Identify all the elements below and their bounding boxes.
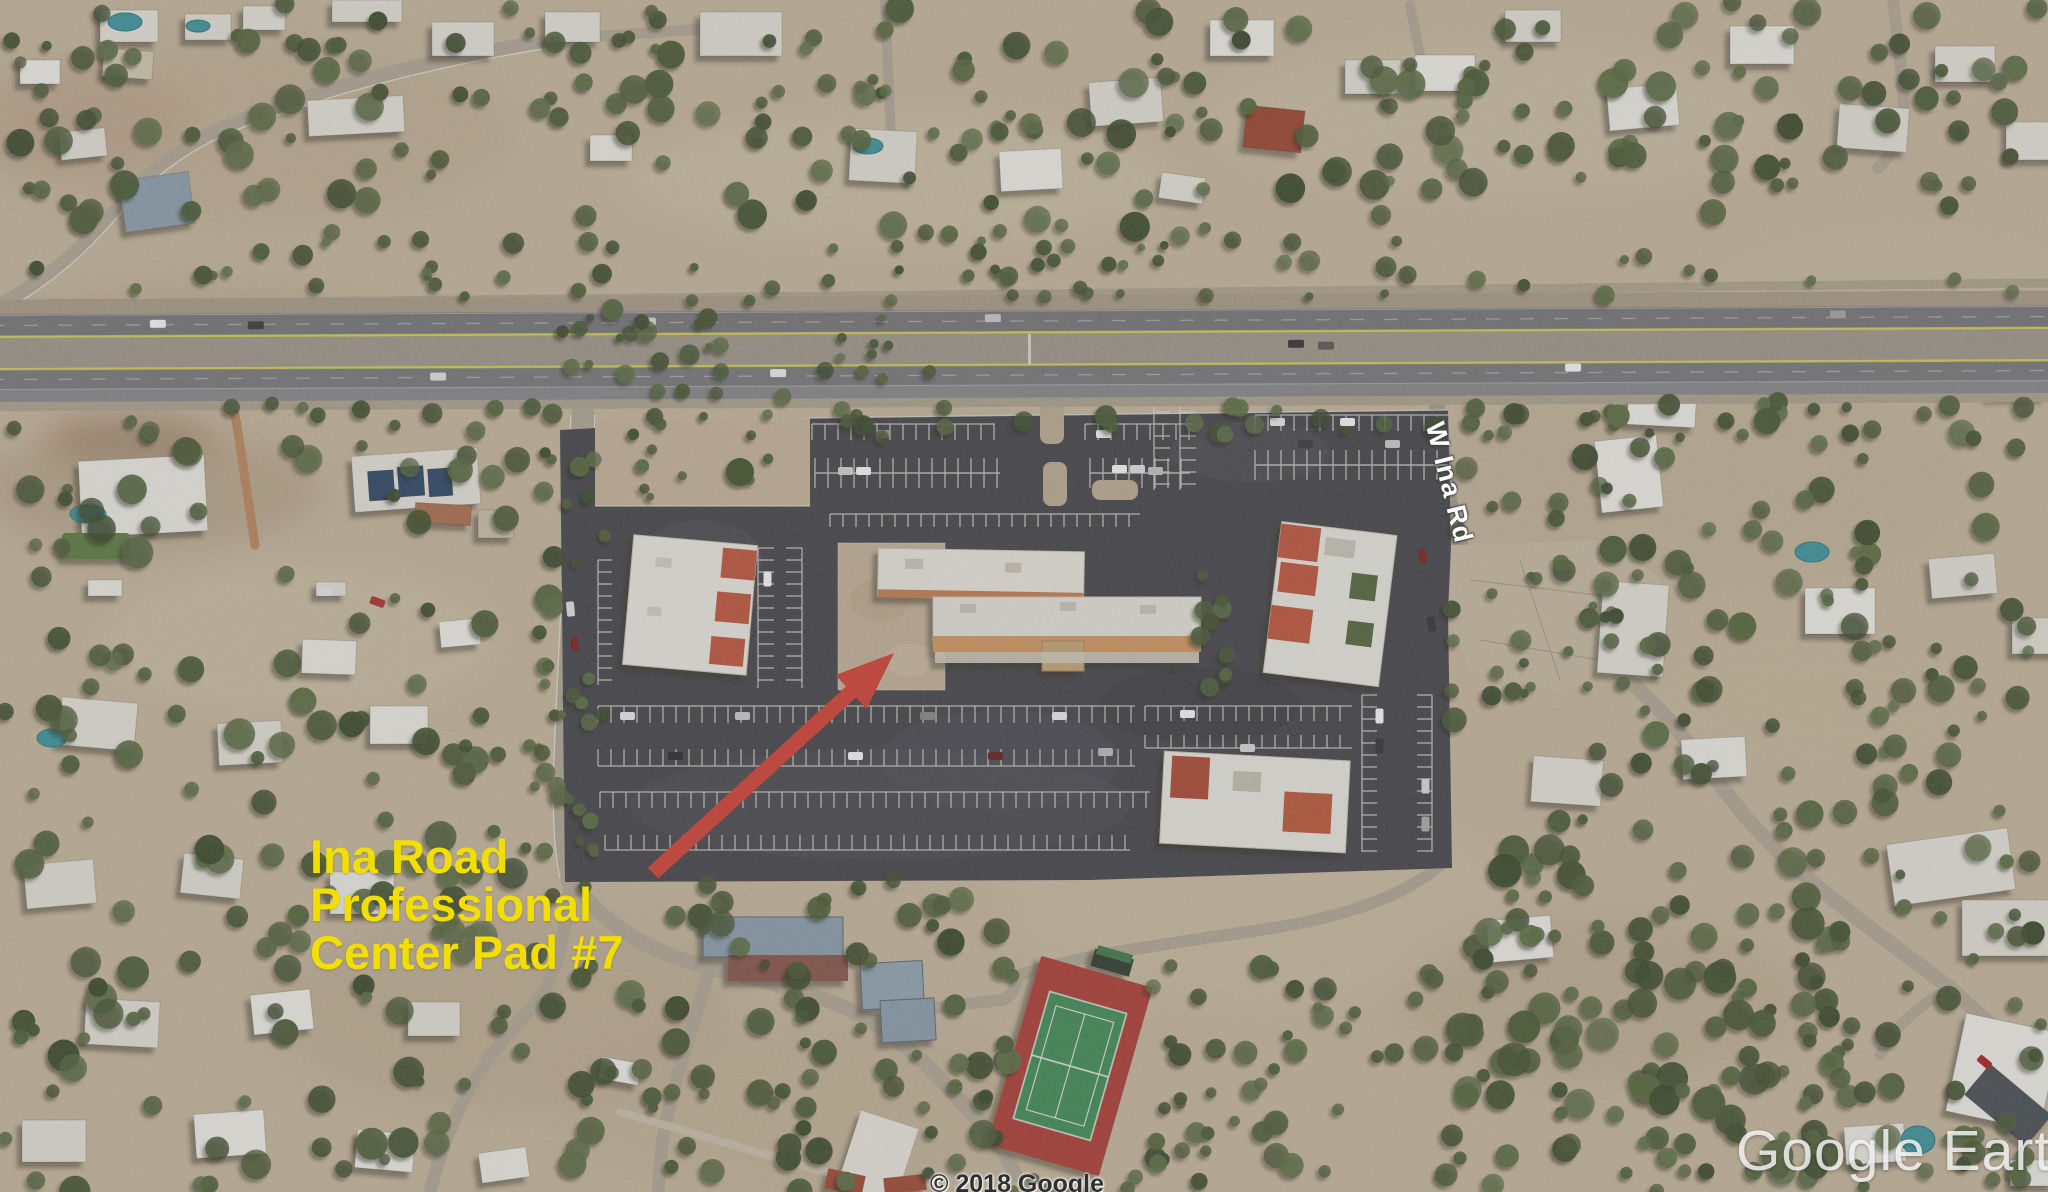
google-earth-viewport[interactable]: Ina Road Professional Center Pad #7 W In… bbox=[0, 0, 2048, 1192]
texture-grain-light bbox=[0, 0, 2048, 1192]
copyright-attribution: © 2018 Google bbox=[930, 1170, 1104, 1192]
satellite-map[interactable] bbox=[0, 0, 2048, 1192]
google-earth-watermark: Google Earth bbox=[1736, 1118, 2048, 1184]
site-label: Ina Road Professional Center Pad #7 bbox=[310, 833, 623, 977]
site-label-line-1: Ina Road bbox=[310, 833, 623, 881]
site-label-line-3: Center Pad #7 bbox=[310, 929, 623, 977]
site-label-line-2: Professional bbox=[310, 881, 623, 929]
